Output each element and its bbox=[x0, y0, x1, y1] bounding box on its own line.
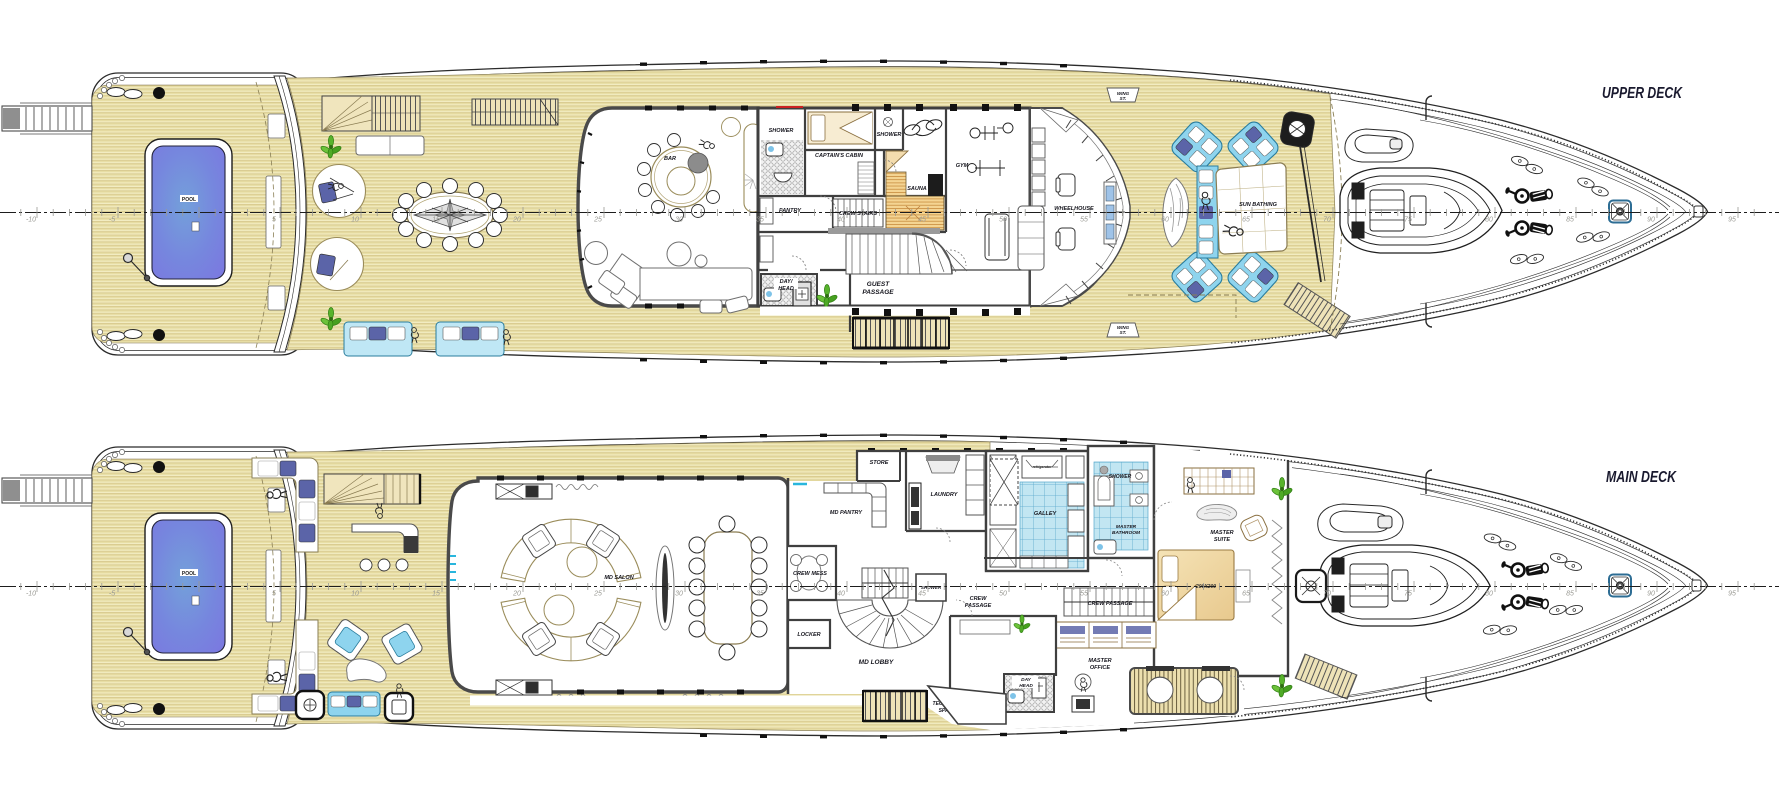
svg-text:15: 15 bbox=[432, 591, 440, 598]
svg-text:BATHROOM: BATHROOM bbox=[1112, 530, 1141, 536]
svg-text:90: 90 bbox=[1647, 217, 1655, 224]
svg-text:60: 60 bbox=[1161, 217, 1169, 224]
svg-text:75: 75 bbox=[1404, 591, 1412, 598]
svg-text:20: 20 bbox=[512, 591, 521, 598]
svg-text:MASTER: MASTER bbox=[1210, 530, 1233, 536]
svg-text:55: 55 bbox=[1080, 217, 1088, 224]
svg-text:MD LOBBY: MD LOBBY bbox=[859, 659, 894, 666]
svg-text:LAUNDRY: LAUNDRY bbox=[931, 492, 959, 498]
svg-text:85: 85 bbox=[1566, 591, 1574, 598]
svg-text:15: 15 bbox=[432, 217, 440, 224]
svg-text:MASTER: MASTER bbox=[1088, 658, 1111, 664]
svg-text:CREW: CREW bbox=[970, 596, 988, 602]
svg-text:80: 80 bbox=[1485, 217, 1493, 224]
svg-text:ST.: ST. bbox=[1120, 330, 1127, 335]
svg-text:OFFICE: OFFICE bbox=[1090, 665, 1110, 671]
svg-text:70: 70 bbox=[1323, 591, 1331, 598]
svg-text:50: 50 bbox=[999, 591, 1007, 598]
svg-text:MAIN DECK: MAIN DECK bbox=[1606, 469, 1677, 486]
svg-text:POOL: POOL bbox=[182, 571, 196, 577]
svg-text:25: 25 bbox=[593, 591, 602, 598]
svg-text:95: 95 bbox=[1728, 217, 1736, 224]
svg-text:-5: -5 bbox=[109, 591, 115, 598]
svg-text:MASTER: MASTER bbox=[1116, 524, 1137, 530]
svg-text:STORE: STORE bbox=[870, 460, 889, 466]
svg-text:LOCKER: LOCKER bbox=[797, 632, 820, 638]
svg-text:refrigerator: refrigerator bbox=[1033, 465, 1053, 469]
svg-text:SUN BATHING: SUN BATHING bbox=[1239, 202, 1278, 208]
svg-text:-10: -10 bbox=[26, 591, 36, 598]
svg-text:UPPER DECK: UPPER DECK bbox=[1602, 85, 1683, 102]
svg-text:70: 70 bbox=[1323, 217, 1331, 224]
svg-text:HEAD: HEAD bbox=[1019, 683, 1033, 689]
svg-text:25: 25 bbox=[593, 217, 602, 224]
svg-text:GALLEY: GALLEY bbox=[1034, 511, 1058, 517]
svg-text:75: 75 bbox=[1404, 217, 1412, 224]
svg-text:-10: -10 bbox=[26, 217, 36, 224]
svg-text:35: 35 bbox=[756, 591, 764, 598]
svg-text:MD SALON: MD SALON bbox=[604, 575, 634, 581]
svg-text:POOL: POOL bbox=[182, 197, 196, 203]
svg-text:5: 5 bbox=[272, 217, 276, 224]
svg-text:HEAD: HEAD bbox=[778, 286, 794, 292]
svg-text:5: 5 bbox=[272, 591, 276, 598]
svg-text:95: 95 bbox=[1728, 591, 1736, 598]
svg-text:SHOWER: SHOWER bbox=[877, 132, 902, 138]
svg-text:20: 20 bbox=[512, 217, 521, 224]
svg-text:CREW PASSAGE: CREW PASSAGE bbox=[1088, 601, 1133, 607]
svg-text:30: 30 bbox=[675, 591, 683, 598]
svg-text:GYM: GYM bbox=[956, 163, 969, 169]
svg-text:DAY: DAY bbox=[1021, 677, 1032, 683]
svg-text:90: 90 bbox=[1647, 591, 1655, 598]
svg-text:55: 55 bbox=[1080, 591, 1088, 598]
svg-text:50: 50 bbox=[999, 217, 1007, 224]
svg-text:PASSAGE: PASSAGE bbox=[862, 289, 894, 296]
svg-text:35: 35 bbox=[756, 217, 764, 224]
svg-text:-5: -5 bbox=[109, 217, 115, 224]
svg-text:CAPTAIN'S CABIN: CAPTAIN'S CABIN bbox=[815, 153, 864, 159]
svg-text:CREW MESS: CREW MESS bbox=[793, 571, 827, 577]
svg-text:40: 40 bbox=[837, 217, 845, 224]
svg-text:200X200: 200X200 bbox=[1195, 584, 1216, 590]
svg-text:GUEST: GUEST bbox=[867, 281, 890, 288]
svg-text:MD PANTRY: MD PANTRY bbox=[830, 510, 864, 516]
svg-text:30: 30 bbox=[675, 217, 683, 224]
svg-text:60: 60 bbox=[1161, 591, 1169, 598]
svg-text:SUITE: SUITE bbox=[1214, 537, 1231, 543]
svg-text:10: 10 bbox=[351, 591, 359, 598]
svg-text:SHOWER: SHOWER bbox=[921, 585, 942, 590]
svg-text:PASSAGE: PASSAGE bbox=[965, 603, 992, 609]
svg-text:SHOWER: SHOWER bbox=[1109, 474, 1132, 480]
svg-text:65: 65 bbox=[1242, 217, 1250, 224]
svg-text:65: 65 bbox=[1242, 591, 1250, 598]
svg-text:BAR: BAR bbox=[664, 156, 676, 162]
svg-text:85: 85 bbox=[1566, 217, 1574, 224]
svg-text:10: 10 bbox=[351, 217, 359, 224]
svg-text:ST.: ST. bbox=[1120, 96, 1127, 101]
svg-text:80: 80 bbox=[1485, 591, 1493, 598]
svg-text:SAUNA: SAUNA bbox=[907, 186, 927, 192]
svg-text:40: 40 bbox=[837, 591, 845, 598]
svg-text:DAY/: DAY/ bbox=[780, 279, 794, 285]
svg-text:45: 45 bbox=[918, 591, 926, 598]
svg-text:45: 45 bbox=[918, 217, 926, 224]
svg-text:SHOWER: SHOWER bbox=[769, 128, 794, 134]
